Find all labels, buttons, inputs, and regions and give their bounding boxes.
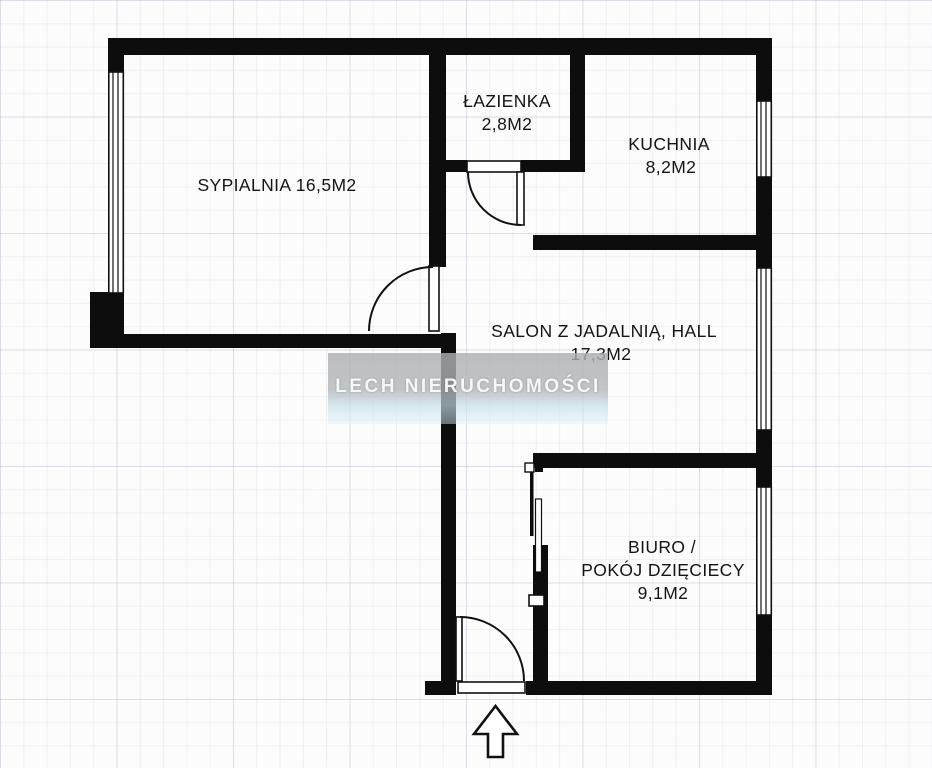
sypialnia-window — [109, 72, 124, 293]
room-label-biuro-area: 9,1M2 — [638, 583, 689, 603]
biuro-window — [757, 487, 772, 615]
salon-window — [757, 268, 772, 430]
bathroom-right-wall — [570, 38, 585, 172]
bottom-wall-left-stub — [425, 681, 456, 695]
kitchen-divider-wall — [533, 235, 772, 250]
sliding-door-pocket-notch — [529, 595, 544, 606]
bathroom-bottom-wall-left — [429, 160, 467, 172]
room-label-kuchnia-name: KUCHNIA — [628, 134, 710, 154]
room-label-lazienka-area: 2,8M2 — [482, 114, 533, 134]
entrance-arrow-icon — [474, 706, 517, 757]
room-label-sypialnia: SYPIALNIA 16,5M2 — [197, 175, 356, 195]
entrance-door-leaf — [456, 617, 462, 681]
entrance-door-threshold — [458, 682, 525, 693]
watermark-text: LECH NIERUCHOMOŚCI — [335, 376, 601, 398]
sliding-door-track-left — [525, 463, 534, 472]
floor-plan-image: SYPIALNIA 16,5M2 ŁAZIENKA 2,8M2 KUCHNIA … — [0, 0, 932, 768]
bathroom-door-threshold — [467, 161, 521, 172]
room-label-biuro-name2: POKÓJ DZIĘCIECY — [581, 559, 745, 580]
entrance-door-arc — [460, 617, 524, 681]
entrance-door — [456, 617, 525, 693]
room-label-kuchnia-area: 8,2M2 — [646, 157, 697, 177]
bathroom-door — [467, 161, 524, 225]
bathroom-door-arc — [468, 172, 521, 225]
sliding-door-track-right — [535, 463, 543, 472]
sypialnia-bottom-wall — [108, 334, 456, 348]
kuchnia-window — [757, 101, 772, 177]
outer-left-wall-top — [108, 38, 124, 74]
bottom-wall-right — [526, 681, 772, 695]
watermark-band: LECH NIERUCHOMOŚCI — [328, 353, 608, 424]
sliding-door-panel-1 — [530, 472, 534, 536]
bathroom-door-leaf — [517, 172, 524, 225]
central-wall-upper — [429, 38, 446, 267]
sypialnia-door — [369, 266, 439, 331]
room-label-lazienka-name: ŁAZIENKA — [463, 91, 551, 111]
room-label-salon-name: SALON Z JADALNIĄ, HALL — [491, 321, 717, 341]
sypialnia-door-arc — [369, 267, 433, 331]
sypialnia-door-leaf — [429, 266, 439, 331]
biuro-top-wall — [533, 453, 772, 468]
room-label-biuro-name1: BIURO / — [628, 537, 696, 557]
sliding-door-panel-2 — [536, 499, 542, 572]
